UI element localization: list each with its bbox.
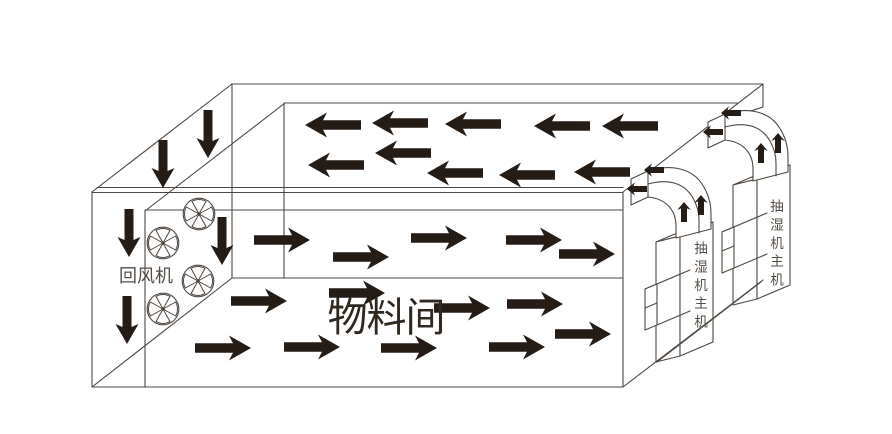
flow-arrow-left xyxy=(372,111,428,136)
fan-hub xyxy=(196,279,199,282)
fan-hub xyxy=(161,307,164,310)
fan-hub xyxy=(197,212,200,215)
flow-arrow-left xyxy=(427,161,483,186)
flow-arrow-left xyxy=(445,112,501,137)
flow-arrow-left xyxy=(534,114,590,139)
dehumidifier-unit-2-label: 抽湿机主机 xyxy=(770,199,784,289)
flow-arrow-down xyxy=(197,110,220,158)
unit2-front-face xyxy=(733,179,757,305)
flow-arrow-left xyxy=(375,141,431,166)
flow-arrow-right xyxy=(411,226,467,251)
flow-arrow-down xyxy=(211,217,234,265)
ceiling-airflow-arrows xyxy=(305,111,658,188)
flow-arrow-down xyxy=(116,296,139,344)
fan-icon xyxy=(147,293,179,325)
flow-arrow-right xyxy=(254,228,310,253)
fan-icon xyxy=(183,198,215,230)
flow-arrow-right xyxy=(489,335,545,360)
flow-arrow-right xyxy=(333,245,389,270)
unit1-front-face xyxy=(656,236,680,362)
material-room-label: 物料间 xyxy=(328,295,445,340)
flow-arrow-left xyxy=(574,160,630,185)
flow-arrow-right xyxy=(507,292,563,317)
flow-arrow-right xyxy=(559,242,615,267)
flow-arrow-left xyxy=(602,114,658,139)
flow-arrow-left xyxy=(308,153,364,178)
flow-arrow-left xyxy=(499,163,555,188)
fan-icon xyxy=(182,265,214,297)
airflow-diagram: 回风机 物料间 抽湿机主机抽湿机主机 xyxy=(0,0,892,434)
flow-arrow-right xyxy=(195,336,251,361)
flow-arrow-right xyxy=(231,289,287,314)
flow-arrow-right xyxy=(555,322,611,347)
return-fan-label: 回风机 xyxy=(119,266,173,287)
fan-hub xyxy=(161,241,164,244)
mid-level-airflow-arrows xyxy=(254,226,615,270)
return-fan-icons xyxy=(147,198,215,325)
flow-arrow-right xyxy=(506,228,562,253)
flow-arrow-left xyxy=(305,113,361,138)
airflow-diagram-page: 回风机 物料间 抽湿机主机抽湿机主机 xyxy=(0,0,892,434)
flow-arrow-down xyxy=(118,209,141,257)
fan-icon xyxy=(147,227,179,259)
flow-arrow-down xyxy=(152,140,175,188)
dehumidifier-unit-1-label: 抽湿机主机 xyxy=(694,241,708,331)
